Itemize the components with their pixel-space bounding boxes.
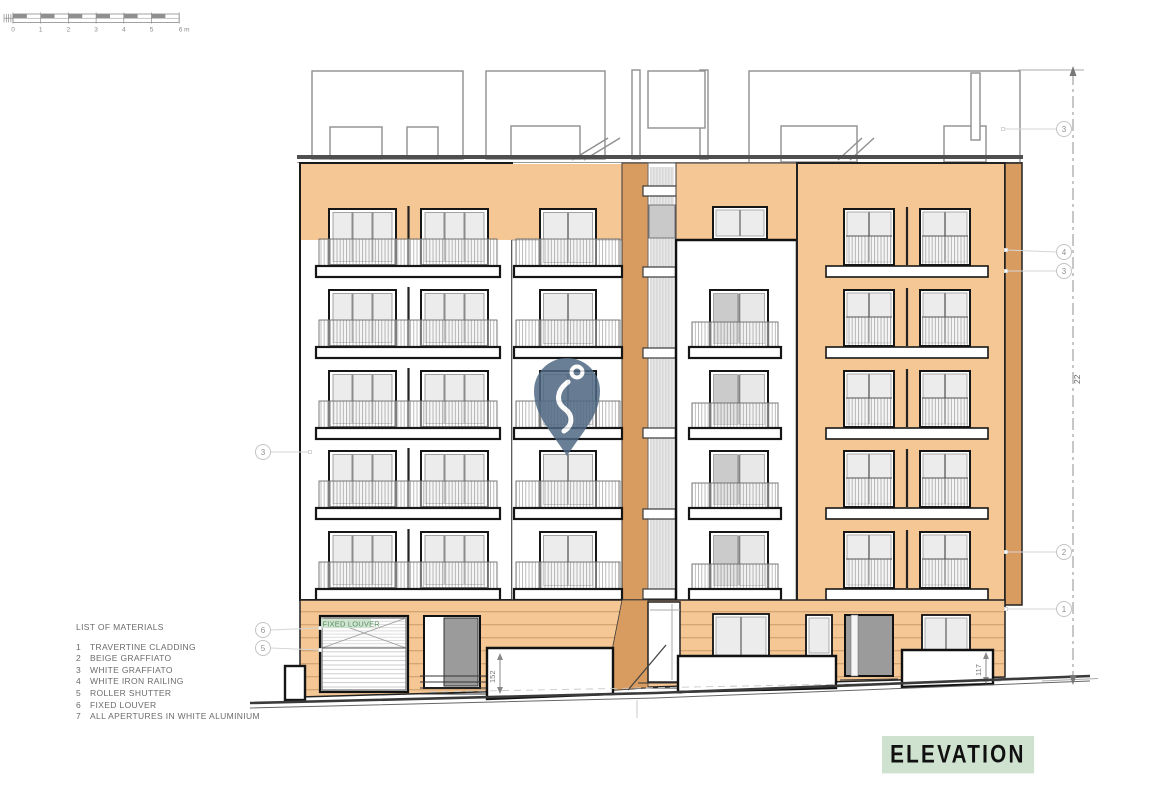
material-item: 1TRAVERTINE CLADDING	[76, 642, 260, 654]
svg-text:1: 1	[1062, 605, 1067, 614]
material-item: 6FIXED LOUVER	[76, 700, 260, 712]
roller-shutter-panel	[322, 648, 406, 690]
svg-text:3: 3	[1062, 267, 1067, 276]
drawing-sheet: 0123456 m	[0, 0, 1153, 800]
left-reveal-strip	[622, 163, 648, 600]
svg-text:4: 4	[1062, 248, 1067, 257]
boundary-wall	[285, 666, 305, 700]
ground-floor: FIXED LOUVER	[285, 600, 1005, 700]
svg-text:2: 2	[1062, 548, 1067, 557]
scale-bar: 0123456 m	[4, 13, 190, 34]
right-block-wall	[797, 163, 1005, 605]
material-item: 7ALL APERTURES IN WHITE ALUMINIUM	[76, 711, 260, 723]
parapet-left	[487, 648, 613, 699]
scale-label: 5	[150, 27, 154, 34]
scale-label: 1	[39, 27, 43, 34]
material-item: 3WHITE GRAFFIATO	[76, 665, 260, 677]
ground-window-2	[922, 615, 970, 653]
left-wing-floors	[316, 206, 500, 600]
right-center-top-window	[713, 207, 767, 239]
ground-window-narrow	[806, 615, 832, 656]
drawing-title: ELEVATION	[882, 736, 1034, 773]
service-door	[840, 615, 898, 685]
svg-text:6: 6	[261, 626, 266, 635]
penthouse-outlines	[312, 70, 1020, 163]
dimension-height: 22	[1018, 66, 1098, 685]
svg-text:3: 3	[261, 448, 266, 457]
scale-label: 4	[122, 27, 126, 34]
right-reveal-strip	[1005, 163, 1022, 605]
materials-list: LIST OF MATERIALS 1TRAVERTINE CLADDING2B…	[76, 622, 260, 723]
dim-left-parapet: 152	[488, 670, 497, 683]
material-item: 5ROLLER SHUTTER	[76, 688, 260, 700]
left-entry-door	[420, 616, 488, 694]
garage-opening: FIXED LOUVER	[320, 616, 408, 692]
svg-text:5: 5	[261, 644, 266, 653]
materials-list-title: LIST OF MATERIALS	[76, 622, 260, 634]
ground-window-1	[713, 614, 769, 658]
drawing-title-text: ELEVATION	[890, 739, 1026, 768]
core-top-window	[649, 205, 675, 238]
dim-building-height: 22	[1072, 374, 1082, 384]
material-item: 4WHITE IRON RAILING	[76, 676, 260, 688]
right-block-floors	[826, 207, 988, 600]
scale-label: 0	[11, 27, 15, 34]
fixed-louver-label: FIXED LOUVER	[323, 620, 381, 629]
svg-text:3: 3	[1062, 125, 1067, 134]
scale-label: 3	[94, 27, 98, 34]
parapets	[487, 648, 993, 699]
scale-label: 6 m	[179, 27, 190, 34]
dim-right-parapet: 117	[974, 664, 983, 676]
material-item: 2BEIGE GRAFFIATO	[76, 653, 260, 665]
scale-label: 2	[67, 27, 71, 34]
